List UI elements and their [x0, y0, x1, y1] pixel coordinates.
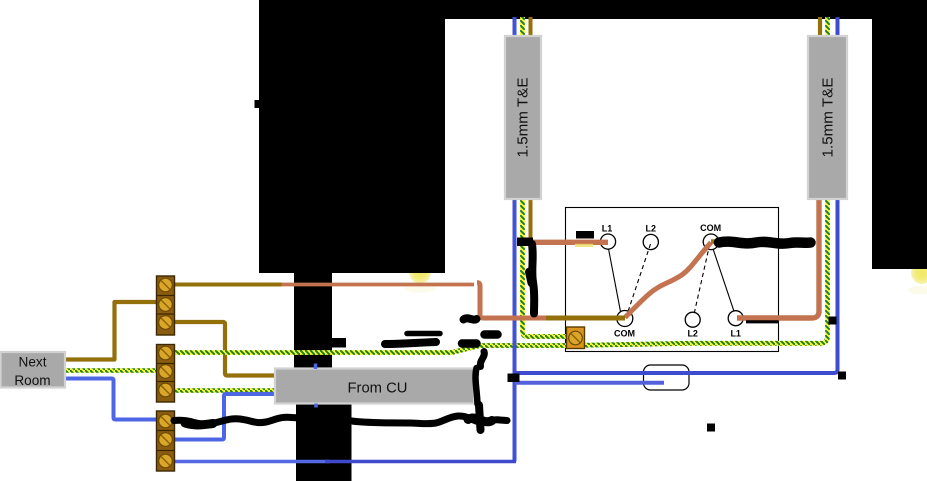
svg-text:1.5mm T&E: 1.5mm T&E [820, 78, 837, 158]
svg-text:L1: L1 [602, 224, 613, 234]
svg-text:Room: Room [14, 373, 50, 388]
svg-text:COM: COM [700, 223, 721, 233]
svg-text:L2: L2 [646, 224, 657, 234]
svg-text:COM: COM [614, 329, 635, 339]
svg-text:L2: L2 [687, 329, 698, 339]
svg-text:Next: Next [19, 355, 47, 370]
svg-text:From CU: From CU [347, 380, 407, 396]
svg-text:L1: L1 [730, 329, 741, 339]
svg-text:1.5mm T&E: 1.5mm T&E [515, 78, 532, 158]
